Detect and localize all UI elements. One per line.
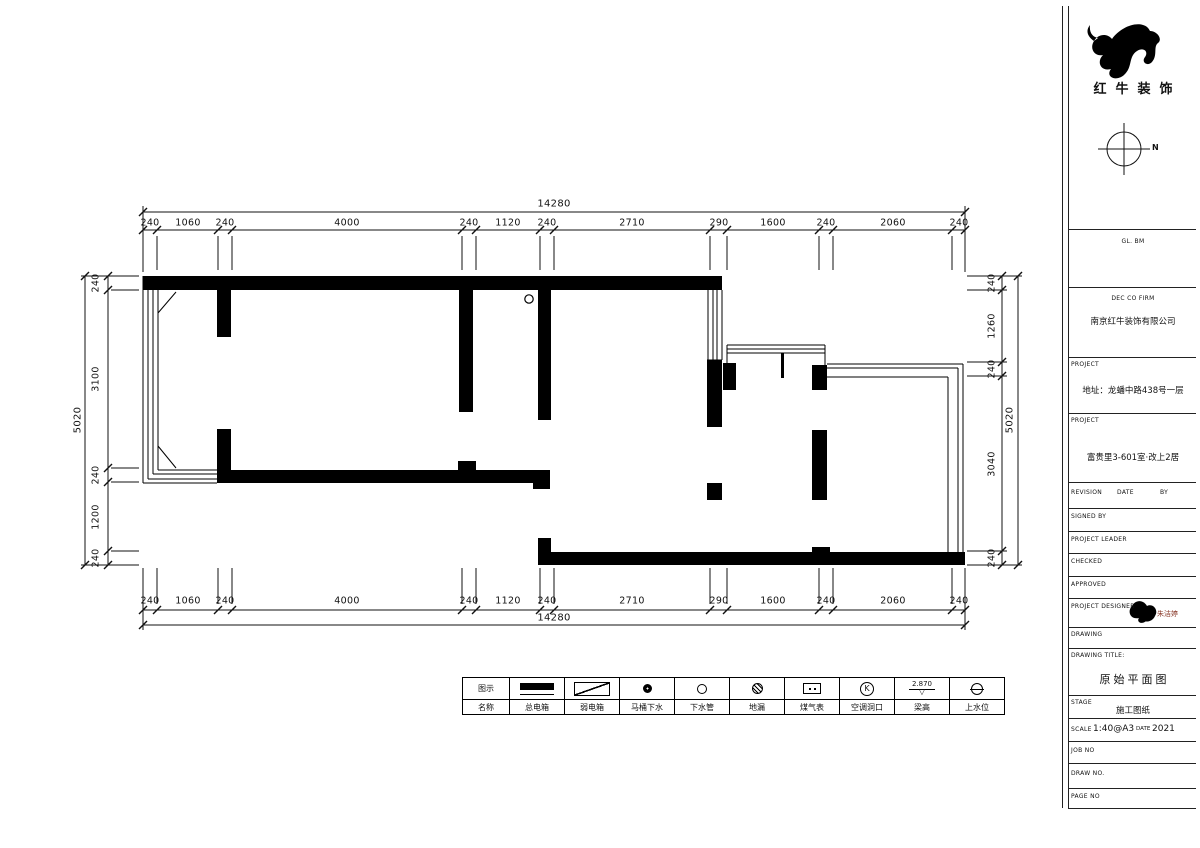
beam-elevation-icon: 2.870▽ [909, 681, 935, 696]
toilet-drain-icon [643, 684, 652, 693]
dim-label: 240 [816, 218, 835, 229]
compass-icon [1098, 123, 1150, 175]
wall-segment [538, 552, 965, 565]
legend-symbol-cell [675, 678, 730, 700]
titleblock-divider [1068, 763, 1196, 764]
job-no-label: JOB NO [1071, 747, 1095, 754]
titleblock-divider [1068, 229, 1196, 230]
water-supply-icon [971, 683, 983, 695]
wall-segment [538, 290, 551, 420]
titleblock-divider [1068, 576, 1196, 577]
gas-meter-icon [803, 683, 821, 694]
titleblock-divider [1068, 598, 1196, 599]
brand-name: 红牛装饰 [1069, 78, 1197, 97]
legend-symbol-cell [785, 678, 840, 700]
dim-total-top: 14280 [537, 199, 570, 210]
page-no-label: PAGE NO [1071, 793, 1100, 800]
checked-label: CHECKED [1071, 558, 1102, 565]
firm-label: DEC CO FIRM [1069, 295, 1197, 302]
wall-segment [459, 290, 473, 412]
wall-segment [217, 470, 550, 483]
wall-segment [533, 483, 550, 489]
titleblock-divider [1068, 648, 1196, 649]
signed-by-label: SIGNED BY [1071, 513, 1106, 520]
legend-item-name: 弱电箱 [565, 700, 620, 715]
drawing-title-label: DRAWING TITLE: [1071, 652, 1125, 659]
wall-segment [458, 461, 476, 470]
dim-label: 240 [987, 359, 998, 378]
floor-plan-drawing [0, 0, 1200, 848]
dim-label: 2060 [880, 218, 905, 229]
project-leader-label: PROJECT LEADER [1071, 536, 1127, 543]
dim-label: 240 [215, 596, 234, 607]
titleblock-divider [1068, 788, 1196, 789]
titleblock-divider [1068, 482, 1196, 483]
dim-label: 240 [949, 218, 968, 229]
draw-no-label: DRAW NO. [1071, 770, 1104, 777]
approved-label: APPROVED [1071, 581, 1106, 588]
titleblock-divider [1068, 695, 1196, 696]
titleblock-divider [1068, 627, 1196, 628]
dim-label: 3100 [91, 366, 102, 391]
legend-item-name: 煤气表 [785, 700, 840, 715]
dim-total-bottom: 14280 [537, 613, 570, 624]
dimension-ticks [81, 208, 1022, 629]
titleblock-divider [1068, 287, 1196, 288]
project-designer-label: PROJECT DESIGNER [1071, 603, 1135, 610]
weak-electric-box-icon [574, 682, 610, 696]
dim-label: 4000 [334, 218, 359, 229]
titleblock-divider [1068, 357, 1196, 358]
dim-total-left: 5020 [73, 407, 84, 434]
drain-pipe-symbol [525, 295, 533, 303]
window-lines [143, 276, 963, 552]
project-label: PROJECT [1071, 417, 1099, 424]
legend-symbol-cell [620, 678, 675, 700]
legend-symbol-cell: K [840, 678, 895, 700]
legend-symbol-cell [950, 678, 1005, 700]
wall-segment [812, 430, 827, 500]
wall-segment [217, 290, 231, 337]
dim-label: 240 [140, 218, 159, 229]
titleblock-code: GL. BM [1069, 238, 1197, 245]
window-corner-diagonal [158, 292, 176, 313]
dim-label: 1120 [495, 596, 520, 607]
legend-symbol-row: 图示 K 2.870▽ [463, 678, 1005, 700]
dim-label: 1200 [91, 504, 102, 529]
legend-item-name: 马桶下水 [620, 700, 675, 715]
legend-item-name: 空调洞口 [840, 700, 895, 715]
scale-value: 1:40@A3 [1093, 724, 1134, 734]
dim-label: 240 [816, 596, 835, 607]
legend-symbol-cell [510, 678, 565, 700]
dim-label: 2710 [619, 218, 644, 229]
stage-value: 施工图纸 [1069, 704, 1197, 716]
legend-item-name: 梁高 [895, 700, 950, 715]
legend-name-row: 名称 总电箱 弱电箱 马桶下水 下水管 地漏 煤气表 空调洞口 梁高 上水位 [463, 700, 1005, 715]
window-corner-diagonal [158, 446, 176, 468]
legend-item-name: 上水位 [950, 700, 1005, 715]
dim-label: 1060 [175, 218, 200, 229]
dim-label: 2710 [619, 596, 644, 607]
dim-label: 240 [949, 596, 968, 607]
ac-hole-icon: K [860, 682, 874, 696]
window-mullion [781, 353, 784, 378]
firm-name: 南京红牛装饰有限公司 [1069, 315, 1197, 327]
legend-symbol-cell: 2.870▽ [895, 678, 950, 700]
titleblock-divider [1068, 718, 1196, 719]
wall-segment [812, 365, 827, 390]
drain-pipe-icon [697, 684, 707, 694]
date-label: DATE [1117, 489, 1134, 496]
revision-label: REVISION [1071, 489, 1102, 496]
dim-label: 240 [987, 548, 998, 567]
drawing-title: 原始平面图 [1069, 671, 1197, 687]
legend-item-name: 总电箱 [510, 700, 565, 715]
legend-table: 图示 K 2.870▽ 名称 总电箱 弱电箱 马桶下水 下水管 地漏 煤气表 空… [462, 677, 1005, 715]
designer-name: 朱洁婷 [1157, 609, 1178, 619]
wall-segment [217, 429, 231, 470]
main-electric-box-icon [520, 683, 554, 695]
legend-item-name: 地漏 [730, 700, 785, 715]
legend-header-bottom: 名称 [463, 700, 510, 715]
titleblock-divider [1068, 808, 1196, 809]
dim-label: 3040 [987, 451, 998, 476]
drawing-sheet: 14280 240 1060 240 4000 240 1120 240 271… [0, 0, 1200, 848]
dim-label: 1600 [760, 218, 785, 229]
titleblock-divider [1068, 508, 1196, 509]
bull-logo-icon [1087, 24, 1159, 78]
legend-header-top: 图示 [463, 678, 510, 700]
floor-drain-icon [752, 683, 763, 694]
titleblock-divider [1068, 413, 1196, 414]
dim-total-right: 5020 [1005, 407, 1016, 434]
wall-segment [707, 360, 722, 427]
compass-north-label: N [1152, 143, 1159, 152]
dim-label: 240 [91, 273, 102, 292]
wall-segment [723, 363, 736, 390]
dim-label: 290 [709, 596, 728, 607]
titleblock-divider [1068, 553, 1196, 554]
project-name: 富贵里3-601室·改上2居 [1069, 451, 1197, 463]
dim-label: 1260 [987, 313, 998, 338]
dim-label: 1120 [495, 218, 520, 229]
dim-label: 2060 [880, 596, 905, 607]
wall-segment [143, 276, 722, 290]
wall-segment [707, 483, 722, 500]
drawing-label: DRAWING [1071, 631, 1102, 638]
dim-label: 240 [537, 218, 556, 229]
by-label: BY [1160, 489, 1168, 496]
date-value: 2021 [1152, 724, 1175, 734]
date-small-label: DATE [1136, 726, 1150, 732]
scale-label: SCALE [1071, 726, 1092, 733]
titleblock-divider [1068, 531, 1196, 532]
dim-label: 240 [91, 465, 102, 484]
dim-label: 240 [215, 218, 234, 229]
dim-label: 240 [459, 218, 478, 229]
titleblock-border [1068, 6, 1069, 808]
dim-label: 240 [91, 548, 102, 567]
legend-symbol-cell [730, 678, 785, 700]
project-address: 地址：龙蟠中路438号一层 [1069, 384, 1197, 396]
dim-label: 240 [987, 273, 998, 292]
dim-label: 1060 [175, 596, 200, 607]
dim-label: 240 [459, 596, 478, 607]
wall-segments [143, 276, 965, 565]
dim-label: 4000 [334, 596, 359, 607]
dim-label: 1600 [760, 596, 785, 607]
legend-symbol-cell [565, 678, 620, 700]
titleblock-border [1062, 6, 1063, 808]
wall-segment [812, 547, 830, 552]
dim-label: 240 [537, 596, 556, 607]
extension-lines [81, 206, 1022, 630]
wall-segment [538, 538, 551, 552]
dim-label: 290 [709, 218, 728, 229]
legend-item-name: 下水管 [675, 700, 730, 715]
project-label: PROJECT [1071, 361, 1099, 368]
dim-label: 240 [140, 596, 159, 607]
titleblock-divider [1068, 741, 1196, 742]
